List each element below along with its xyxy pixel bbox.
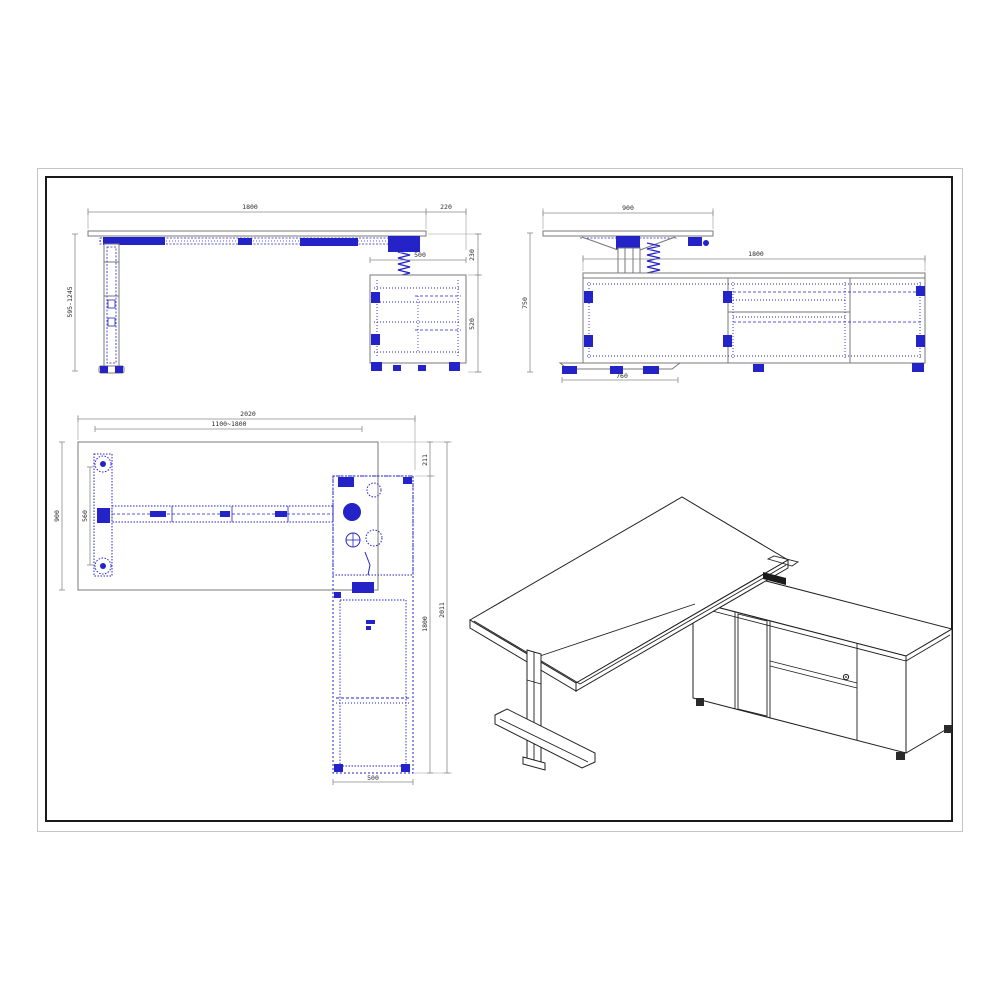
dim-side-desk-depth: 900 — [543, 204, 713, 229]
dim-label: 1800 — [748, 250, 764, 258]
dim-label: 500 — [414, 251, 426, 259]
desk-top-side — [543, 231, 713, 236]
dim-label: 2011 — [438, 602, 446, 618]
pedestal-cabinet-front — [370, 275, 466, 371]
dim-label: 230 — [468, 249, 476, 261]
hinge-icon — [371, 292, 380, 303]
credenza-side — [583, 273, 925, 372]
dim-label: 900 — [622, 204, 634, 212]
foot-glide — [944, 725, 952, 733]
dim-side-foot-length: 760 — [562, 372, 678, 383]
dim-label: 211 — [421, 454, 429, 466]
dim-label: 220 — [440, 203, 452, 211]
dim-label: 750 — [521, 297, 529, 309]
dim-label: 1800 — [242, 203, 258, 211]
dim-label: 595-1245 — [66, 286, 74, 317]
dim-front-height-range: 595-1245 — [66, 234, 78, 371]
control-box-plan — [352, 582, 374, 593]
desk-frame-hardware — [100, 236, 420, 252]
technical-drawing: 1800 220 — [0, 0, 1000, 1000]
hinge-icon — [584, 291, 593, 303]
front-elevation-view: 1800 220 — [66, 203, 482, 373]
dim-label: 500 — [367, 774, 379, 782]
foot-glide — [696, 698, 704, 706]
dim-label: 520 — [468, 318, 476, 330]
dim-label: 900 — [53, 510, 61, 522]
fitting-symbol — [366, 620, 375, 624]
dim-label: 560 — [81, 510, 89, 522]
foot-glide — [896, 752, 905, 760]
desk-top — [88, 231, 426, 236]
side-elevation-view: 900 — [521, 204, 925, 383]
desk-leg-left — [99, 244, 124, 373]
dim-side-desk-height: 750 — [521, 233, 533, 372]
dim-plan-cabinet-depth: 500 — [333, 774, 413, 785]
control-box — [388, 236, 420, 252]
plan-view: 2020 1100~1800 — [53, 410, 452, 785]
hinge-icon — [723, 335, 732, 347]
iso-credenza — [693, 574, 952, 760]
dim-front-cabinet-width: 500 — [370, 251, 466, 263]
lock-pin — [845, 676, 847, 678]
top-bracket — [580, 236, 709, 250]
dim-label: 1100~1800 — [211, 420, 246, 428]
dim-plan-right: 211 1800 2011 — [380, 442, 452, 773]
dim-label: 1800 — [421, 616, 429, 632]
isometric-view — [470, 497, 952, 770]
hinge-icon — [371, 334, 380, 345]
hinge-icon — [584, 335, 593, 347]
hinge-icon — [723, 291, 732, 303]
hinge-icon — [916, 335, 925, 347]
dim-label: 760 — [616, 372, 628, 380]
dim-label: 2020 — [240, 410, 256, 418]
drawing-sheet: 1800 220 — [0, 0, 1000, 1000]
hinge-icon — [916, 286, 925, 296]
